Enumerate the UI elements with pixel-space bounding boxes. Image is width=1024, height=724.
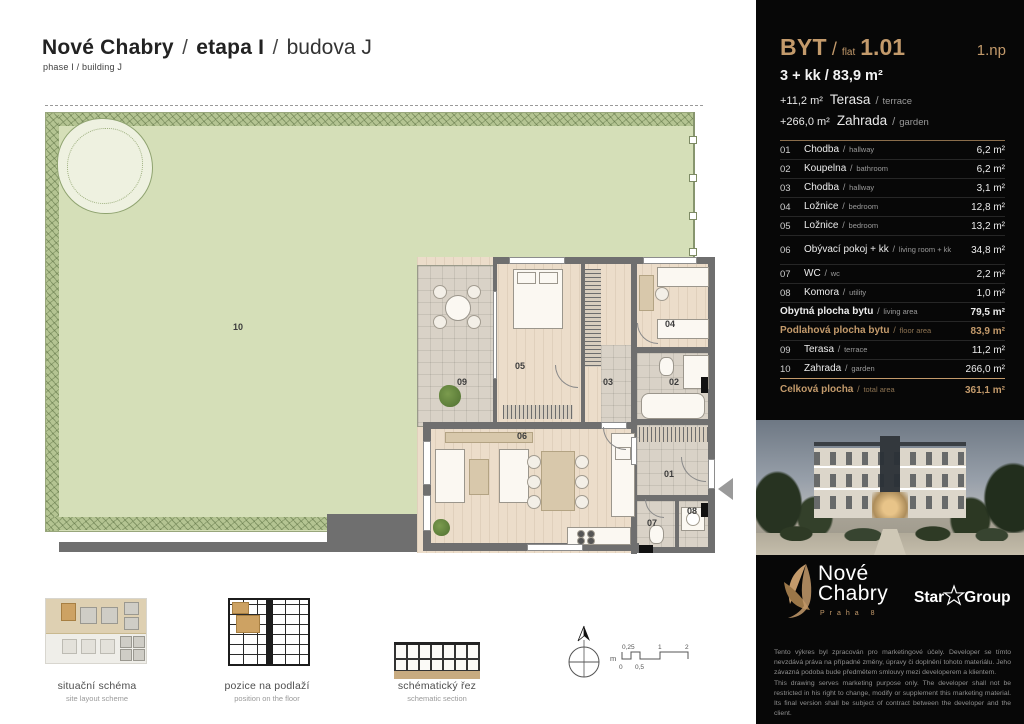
row-area: 34,8 m² — [971, 245, 1005, 256]
svg-text:2: 2 — [685, 644, 689, 651]
entrance-arrow-icon — [718, 478, 733, 500]
floorplan-sheet: Nové Chabry / etapa I / budova J phase I… — [0, 0, 1024, 724]
terrace-area: +11,2 m² — [780, 95, 830, 107]
site-building — [124, 602, 139, 615]
table-row-living-area: Obytná plocha bytu / living area 79,5 m² — [780, 303, 1005, 322]
dining-chair — [575, 455, 589, 469]
row-area: 79,5 m² — [971, 307, 1005, 318]
room-label-01: 01 — [664, 469, 674, 479]
floor-number: 1.np — [977, 42, 1006, 59]
flat-number: 1.01 — [860, 34, 905, 61]
wall-right — [708, 257, 715, 553]
row-area: 13,2 m² — [971, 221, 1005, 232]
title-separator: / — [178, 37, 192, 59]
building-step-wall — [327, 514, 421, 544]
logo-praha8: Praha 8 — [820, 610, 880, 617]
terrace-chair — [467, 285, 481, 299]
floor-position-thumbnail — [228, 598, 310, 666]
project-name: Nové Chabry — [42, 36, 174, 59]
table-row: 04 Ložnice / bedroom 12,8 m² — [780, 198, 1005, 217]
window-kitchen — [527, 544, 583, 551]
row-area: 2,2 m² — [977, 269, 1005, 280]
window-living-2 — [423, 495, 431, 531]
caption-en: site layout scheme — [22, 694, 172, 703]
table-row: 02 Koupelna / bathroom 6,2 m² — [780, 160, 1005, 179]
floor-plan: 10 — [45, 104, 715, 556]
room-label-09: 09 — [457, 377, 467, 387]
table-row: 09 Terasa / terrace 11,2 m² — [780, 341, 1005, 360]
row-name: Zahrada / garden — [804, 363, 966, 374]
row-area: 266,0 m² — [966, 364, 1005, 375]
svg-text:0,5: 0,5 — [635, 664, 644, 671]
entrance-door-gap — [708, 459, 715, 489]
table-row: 03 Chodba / hallway 3,1 m² — [780, 179, 1005, 198]
room-label-garden: 10 — [233, 322, 243, 332]
section-basement — [394, 670, 480, 679]
logo-wordmark: Nové Chabry — [818, 564, 888, 604]
row-area: 83,9 m² — [971, 326, 1005, 337]
row-number: 07 — [780, 269, 804, 280]
legal-en-1: This drawing serves marketing purpose on… — [774, 679, 1011, 720]
tree-canopy — [67, 128, 143, 204]
row-name: Terasa / terrace — [804, 344, 972, 355]
wall-bed04-bath — [637, 347, 708, 353]
bird-leaf-icon — [780, 562, 816, 620]
table-row: 05 Ložnice / bedroom 13,2 m² — [780, 217, 1005, 236]
row-number: 08 — [780, 288, 804, 299]
info-panel: BYT / flat 1.01 1.np 3 + kk / 83,9 m² +1… — [756, 0, 1024, 724]
row-number: 01 — [780, 145, 804, 156]
room-label-05: 05 — [515, 361, 525, 371]
terrace-chair — [433, 315, 447, 329]
stage-name: etapa I — [196, 36, 264, 59]
site-building — [62, 639, 77, 654]
site-building — [133, 636, 145, 648]
photo-entrance-light — [872, 492, 908, 518]
row-name: Obývací pokoj + kk / living room + kk — [804, 244, 971, 255]
room-label-04: 04 — [665, 319, 675, 329]
sofa-2 — [499, 449, 529, 503]
caption-en: position on the floor — [192, 694, 342, 703]
site-building-highlight — [61, 603, 76, 621]
desk — [639, 275, 654, 311]
shaft — [701, 377, 708, 393]
row-name: Podlahová plocha bytu / floor area — [780, 325, 971, 336]
dining-chair — [527, 475, 541, 489]
row-name: Chodba / hallway — [804, 182, 977, 193]
wardrobe-hatch-vertical — [585, 269, 601, 367]
apartment-unit: 09 05 03 04 02 06 01 07 08 — [417, 257, 715, 553]
row-area: 3,1 m² — [977, 183, 1005, 194]
site-building — [124, 617, 139, 630]
room-label-03: 03 — [603, 377, 613, 387]
pillow — [517, 272, 536, 284]
flat-header: BYT / flat 1.01 1.np — [780, 34, 1006, 61]
stove-burner — [587, 537, 595, 545]
legal-disclaimer: Tento výkres byl zpracován pro marketing… — [774, 648, 1011, 724]
row-name: WC / wc — [804, 268, 977, 279]
table-row: 06 Obývací pokoj + kk / living room + kk… — [780, 236, 1005, 265]
table-row: 01 Chodba / hallway 6,2 m² — [780, 141, 1005, 160]
wall-wc-utility — [675, 501, 679, 553]
caption-cz: situační schéma — [22, 680, 172, 692]
bathtub — [641, 393, 705, 419]
wardrobe-hatch-hall — [639, 427, 708, 442]
door-arc-bed04 — [637, 323, 658, 344]
pillow — [539, 272, 558, 284]
row-area: 361,1 m² — [965, 385, 1005, 396]
sofa-1 — [435, 449, 465, 503]
table-row-floor-area: Podlahová plocha bytu / floor area 83,9 … — [780, 322, 1005, 341]
wall-bath-hall — [637, 419, 715, 425]
floor-position-caption: pozice na podlaží position on the floor — [192, 680, 342, 703]
hedge-top — [46, 113, 694, 126]
terrace-table — [445, 295, 471, 321]
terrace-cz: Terasa — [830, 92, 876, 107]
room-label-02: 02 — [669, 377, 679, 387]
page-subtitle: phase I / building J — [43, 62, 122, 72]
garden-en: garden — [899, 117, 929, 128]
north-compass-icon — [563, 624, 605, 682]
floor-core — [266, 600, 273, 664]
row-name: Ložnice / bedroom — [804, 220, 971, 231]
tree — [57, 118, 153, 214]
flat-highlight — [236, 615, 260, 633]
window-bedroom04 — [643, 257, 697, 264]
fence-post — [689, 136, 697, 144]
bed-single-1 — [657, 267, 709, 287]
door-arc-bed05 — [555, 365, 578, 388]
row-area: 1,0 m² — [977, 288, 1005, 299]
row-area: 11,2 m² — [972, 345, 1005, 356]
row-number: 05 — [780, 221, 804, 232]
star-icon — [942, 584, 966, 608]
site-building — [100, 639, 115, 654]
photo-windows — [814, 474, 966, 487]
building-photo — [756, 420, 1024, 555]
door-gap-living-hall01 — [631, 437, 637, 465]
nove-chabry-logo: Nové Chabry Praha 8 — [780, 560, 930, 640]
site-building — [101, 607, 118, 624]
garden-sep: / — [892, 116, 899, 128]
star-word: Star — [914, 589, 944, 607]
row-name: Komora / utility — [804, 287, 977, 298]
page-title: Nové Chabry / etapa I / budova J — [42, 36, 372, 60]
svg-text:1: 1 — [658, 644, 662, 651]
row-number: 03 — [780, 183, 804, 194]
table-row-total-area: Celková plocha / total area 361,1 m² — [780, 378, 1005, 401]
site-building — [120, 649, 132, 661]
disposition: 3 + kk / 83,9 m² — [780, 68, 883, 84]
flat-word: flat — [842, 47, 860, 58]
row-name: Celková plocha / total area — [780, 384, 965, 395]
garden-cz: Zahrada — [837, 113, 892, 128]
scale-unit: m — [610, 654, 616, 663]
window-terrace-door — [493, 291, 497, 379]
row-name: Obytná plocha bytu / living area — [780, 306, 971, 317]
row-name: Chodba / hallway — [804, 144, 977, 155]
flat-byt-label: BYT — [780, 34, 827, 61]
caption-cz: schématický řez — [362, 680, 512, 692]
wardrobe-hatch-bed05 — [503, 405, 573, 419]
site-layout-thumbnail — [45, 598, 147, 664]
section-floor-line — [394, 658, 480, 660]
table-row: 10 Zahrada / garden 266,0 m² — [780, 360, 1005, 378]
group-word: Group — [964, 589, 1011, 607]
fence-line — [693, 112, 695, 260]
row-area: 12,8 m² — [971, 202, 1005, 213]
window-living-1 — [423, 441, 431, 485]
site-building — [133, 649, 145, 661]
fence-post — [689, 212, 697, 220]
terrace-plant — [439, 385, 461, 407]
shaft — [639, 545, 653, 553]
fence-post — [689, 174, 697, 182]
room-label-07: 07 — [647, 518, 657, 528]
terrace-sep: / — [875, 95, 882, 107]
dining-table — [541, 451, 575, 511]
row-name: Koupelna / bathroom — [804, 163, 977, 174]
room-label-06: 06 — [517, 431, 527, 441]
room-table: 01 Chodba / hallway 6,2 m² 02 Koupelna /… — [780, 140, 1005, 401]
scale-bar: m 0,25 1 2 0 0,5 — [608, 640, 694, 672]
row-number: 10 — [780, 364, 804, 375]
door-arc-living — [603, 427, 626, 450]
photo-windows — [814, 452, 966, 465]
dining-chair — [575, 475, 589, 489]
caption-cz: pozice na podlaží — [192, 680, 342, 692]
dining-chair — [527, 495, 541, 509]
garden-summary: +266,0 m² Zahrada / garden — [780, 113, 929, 128]
room-label-08: 08 — [687, 506, 697, 516]
property-boundary-line — [45, 105, 703, 106]
table-row: 08 Komora / utility 1,0 m² — [780, 284, 1005, 303]
star-group-logo: Star Group — [914, 584, 1011, 612]
row-number: 09 — [780, 345, 804, 356]
dining-chair — [575, 495, 589, 509]
building-name: budova J — [287, 36, 372, 59]
row-area: 6,2 m² — [977, 145, 1005, 156]
caption-en: schematic section — [362, 694, 512, 703]
terrace-en: terrace — [883, 96, 913, 107]
site-building — [120, 636, 132, 648]
row-number: 06 — [780, 245, 804, 256]
terrace-chair — [467, 315, 481, 329]
flat-separator: / — [827, 39, 842, 60]
site-building — [81, 639, 96, 654]
flat-highlight — [232, 602, 249, 614]
table-row: 07 WC / wc 2,2 m² — [780, 265, 1005, 284]
title-separator: / — [269, 37, 283, 59]
row-number: 04 — [780, 202, 804, 213]
terrace-summary: +11,2 m² Terasa / terrace — [780, 92, 912, 107]
terrace-chair — [433, 285, 447, 299]
desk-chair — [655, 287, 669, 301]
row-area: 6,2 m² — [977, 164, 1005, 175]
coffee-table — [469, 459, 489, 495]
toilet-bathroom — [659, 357, 674, 376]
row-number: 02 — [780, 164, 804, 175]
site-layout-caption: situační schéma site layout scheme — [22, 680, 172, 703]
logo-line-2: Chabry — [818, 582, 888, 605]
section-caption: schématický řez schematic section — [362, 680, 512, 703]
svg-text:0: 0 — [619, 664, 623, 671]
living-plant — [433, 519, 450, 536]
dining-chair — [527, 455, 541, 469]
shaft — [701, 503, 708, 517]
svg-text:0,25: 0,25 — [622, 644, 635, 651]
fence-post — [689, 248, 697, 256]
section-thumbnail — [394, 642, 480, 679]
site-building — [80, 607, 97, 624]
row-name: Ložnice / bedroom — [804, 201, 971, 212]
hedge-bottom — [46, 517, 338, 530]
garden-area: +266,0 m² — [780, 116, 837, 128]
legal-cz-1: Tento výkres byl zpracován pro marketing… — [774, 648, 1011, 679]
window-bedroom05 — [509, 257, 565, 264]
